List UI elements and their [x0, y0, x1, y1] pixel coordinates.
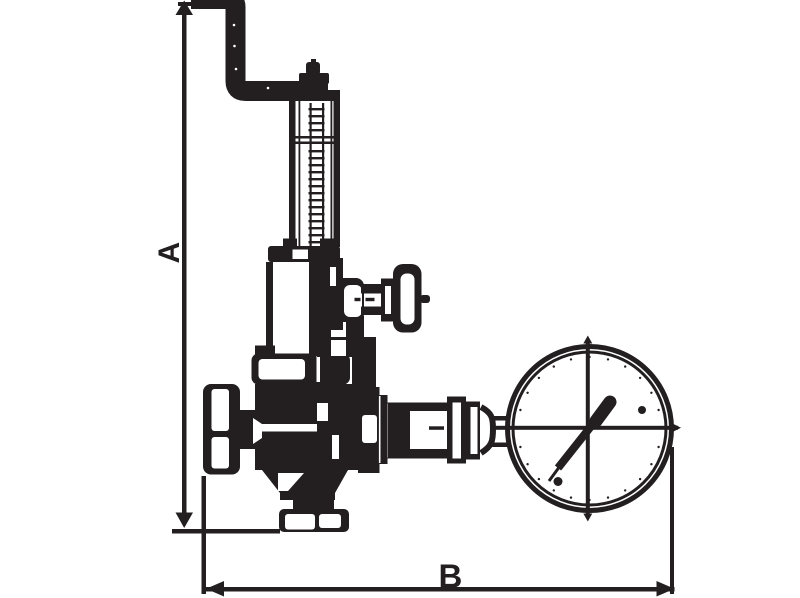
svg-text:A: A: [153, 242, 186, 264]
svg-text:B: B: [439, 558, 463, 595]
